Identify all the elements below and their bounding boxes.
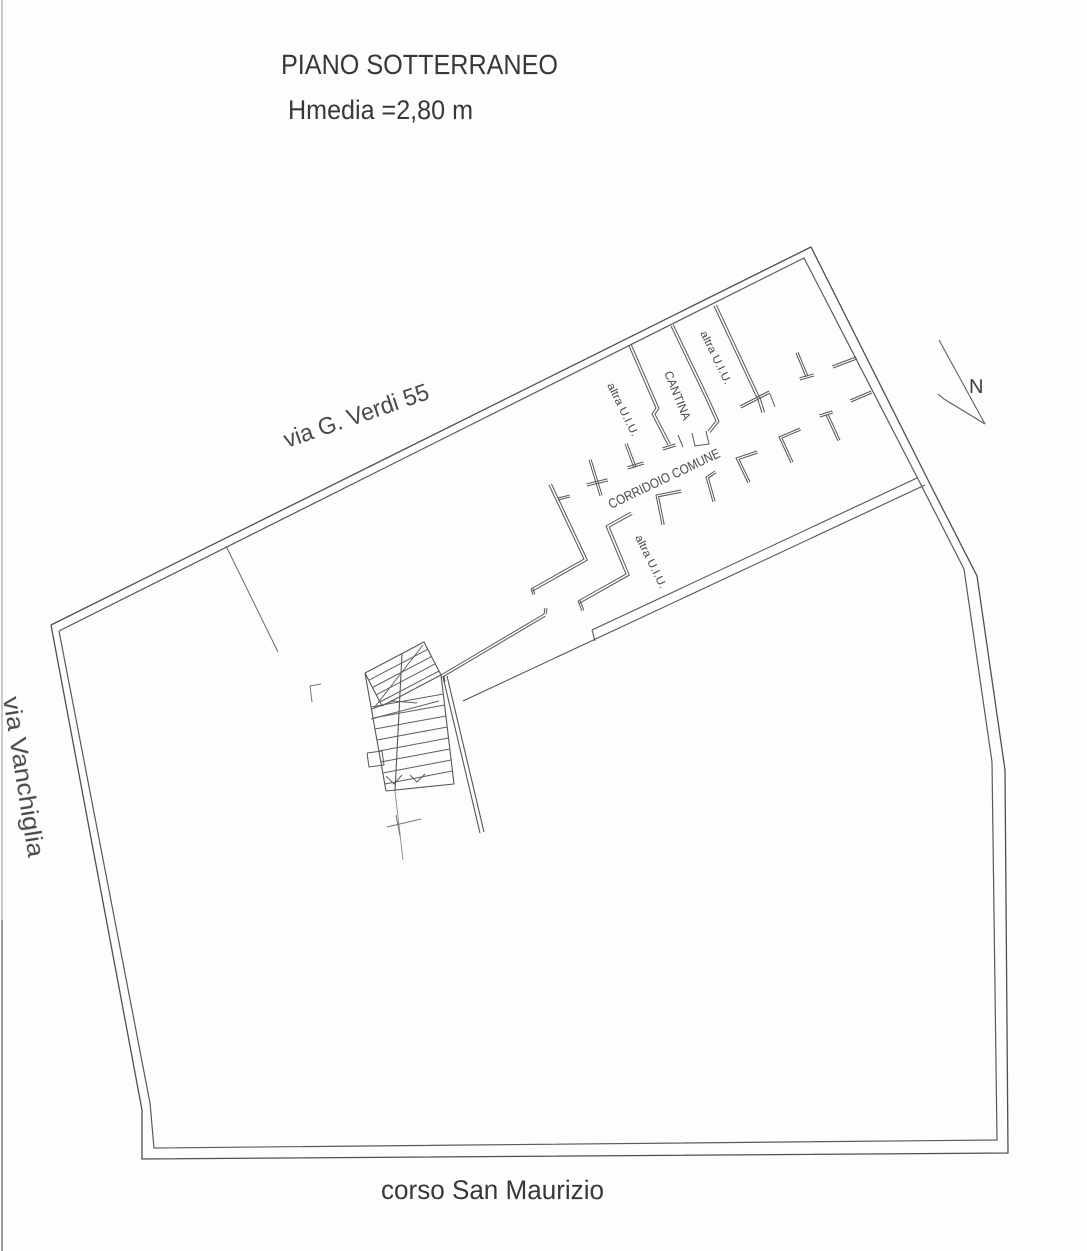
svg-text:CANTINA: CANTINA xyxy=(661,369,693,422)
svg-text:via G. Verdi 55: via G. Verdi 55 xyxy=(280,379,433,454)
svg-text:PIANO SOTTERRANEO: PIANO SOTTERRANEO xyxy=(281,49,558,80)
svg-text:CORRIDOIO COMUNE: CORRIDOIO COMUNE xyxy=(606,446,723,512)
svg-text:altra U.I.U.: altra U.I.U. xyxy=(697,329,733,386)
svg-text:corso San Maurizio: corso San Maurizio xyxy=(381,1175,604,1205)
svg-text:altra U.I.U.: altra U.I.U. xyxy=(604,381,640,438)
svg-text:altra U.I.U.: altra U.I.U. xyxy=(632,533,668,590)
svg-text:N: N xyxy=(969,376,983,398)
svg-text:Hmedia =2,80 m: Hmedia =2,80 m xyxy=(288,95,473,125)
svg-text:via Vanchiglia: via Vanchiglia xyxy=(0,695,49,860)
